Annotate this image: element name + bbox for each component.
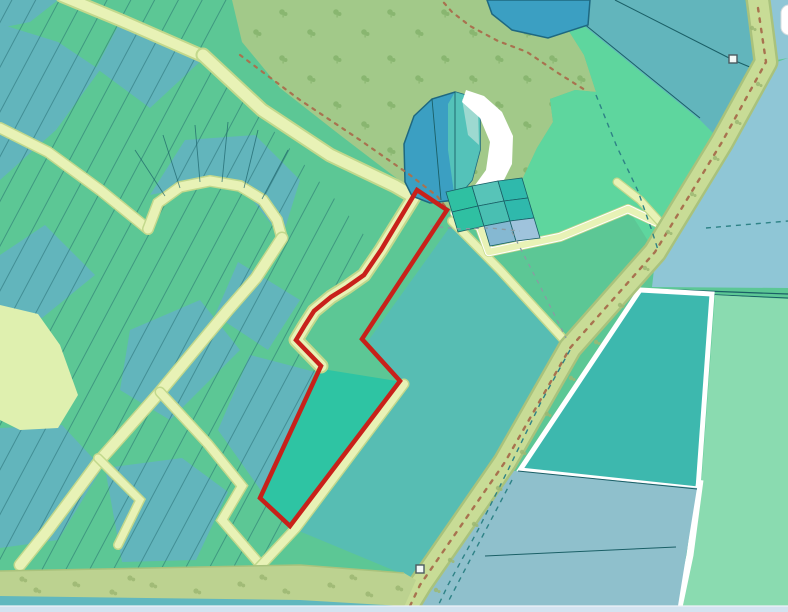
square-marker-icon[interactable] bbox=[416, 565, 424, 573]
cadastral-map-svg[interactable] bbox=[0, 0, 788, 612]
map-control-peek-button[interactable] bbox=[781, 5, 788, 35]
viewport-bottom-strip bbox=[0, 606, 788, 612]
square-marker-icon[interactable] bbox=[729, 55, 737, 63]
map-viewport[interactable]: { "map": { "kind": "cadastral-parcel-map… bbox=[0, 0, 788, 612]
